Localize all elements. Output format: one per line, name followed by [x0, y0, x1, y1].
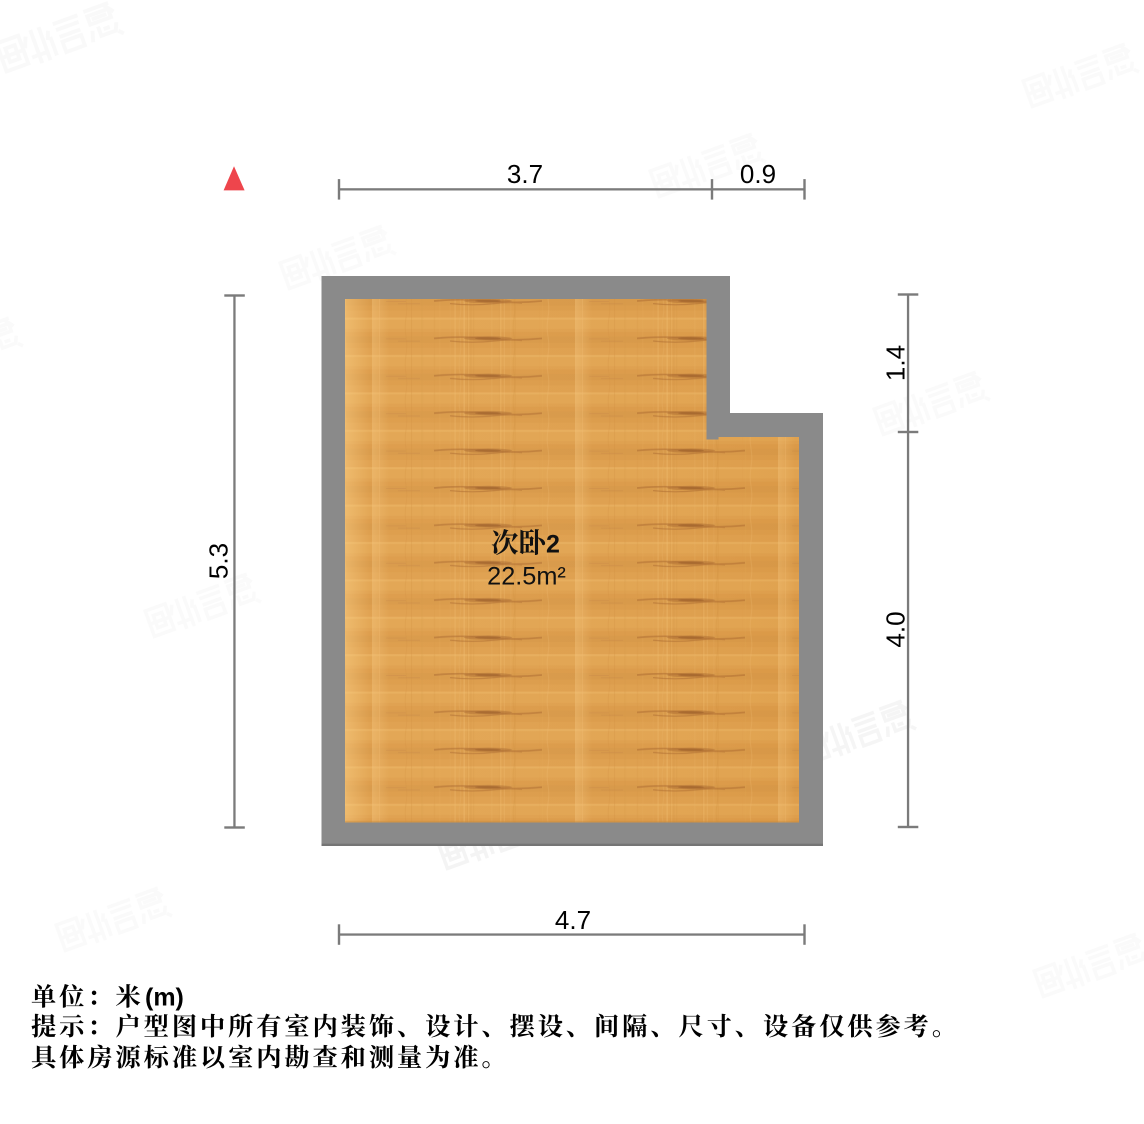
svg-text:2: 2 [546, 531, 560, 559]
svg-text:22.5m²: 22.5m² [487, 563, 566, 591]
svg-text:1.4: 1.4 [881, 345, 911, 381]
svg-text:0.9: 0.9 [740, 159, 776, 189]
svg-text:5.3: 5.3 [204, 543, 234, 579]
svg-text:4.7: 4.7 [555, 905, 591, 935]
svg-text:4.0: 4.0 [881, 611, 911, 647]
svg-text:(m): (m) [145, 984, 184, 1012]
svg-text:3.7: 3.7 [507, 159, 543, 189]
